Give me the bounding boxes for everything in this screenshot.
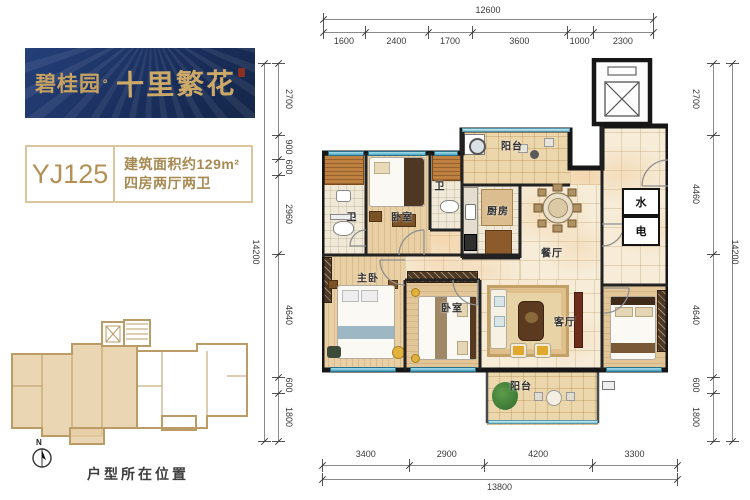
dim-segment-label: 3400 [356,449,376,459]
room-label: 卧室 [391,209,413,224]
dim-segment-label: 900 [284,139,294,154]
unit-area: 建筑面积约129m² [124,155,251,174]
dim-segment-label: 4200 [528,449,548,459]
room-label: 卫 [435,178,446,193]
dim-segment-label: 4640 [691,305,701,325]
unit-code: YJ125 [27,147,115,201]
logo-brand-text: 碧桂园 [35,68,101,98]
room-label: 主卧 [357,270,379,285]
dimension-strip-top: 16002400170036001000230012600 [323,8,653,54]
dim-segment-label: 2700 [284,89,294,109]
dim-segment-label: 1700 [440,36,460,46]
dim-line [322,479,677,480]
keyplan-caption: 户型所在位置 [38,464,238,484]
dim-segment-label: 3600 [509,36,529,46]
dim-segment-label: 2960 [284,204,294,224]
room-labels-layer: 卫卧室卫阳台厨房餐厅主卧卧室客厅阳台 [322,58,668,430]
dim-segment-label: 600 [691,378,701,393]
unit-description: 建筑面积约129m² 四房两厅两卫 [115,147,251,201]
dim-segment-label: 4460 [691,184,701,204]
dim-line [264,63,265,441]
dim-line [323,32,653,33]
dim-line [322,465,677,466]
dim-line [323,19,653,20]
unit-layout: 四房两厅两卫 [124,174,251,193]
room-label: 阳台 [510,378,532,393]
dim-segment-label: 2900 [437,449,457,459]
unit-info-box: YJ125 建筑面积约129m² 四房两厅两卫 [25,145,253,203]
logo-separator: 。 [103,70,114,86]
dim-segment-label: 1800 [691,407,701,427]
dimension-strip-right: 270044604640600180014200 [688,63,738,441]
room-label: 厨房 [487,203,509,218]
dim-segment-label: 3300 [625,449,645,459]
dimension-strip-left: 270090060029604640600180014200 [252,63,298,441]
dim-segment-label: 2400 [386,36,406,46]
brand-logo: 碧桂园 。 十里繁花 [25,48,255,118]
dim-segment-label: 1800 [284,407,294,427]
dim-segment-label: 1600 [334,36,354,46]
dim-segment-label: 2700 [691,89,701,109]
dim-total-label: 14200 [730,239,740,264]
room-label: 阳台 [501,138,523,153]
room-label: 客厅 [554,314,576,329]
room-label: 餐厅 [541,245,563,260]
dim-segment-label: 1000 [570,36,590,46]
room-label: 卧室 [441,300,463,315]
dim-segment-label: 600 [284,378,294,393]
dimension-strip-bottom: 340029004200330013800 [322,448,677,498]
room-label: 卫 [347,209,358,224]
logo-seal-icon [238,68,245,77]
dim-segment-label: 4640 [284,305,294,325]
dim-segment-label: 2300 [613,36,633,46]
page: { "logo": { "brand": "碧桂园", "dot": "。", … [0,0,750,500]
dim-total-label: 13800 [487,482,512,492]
dim-total-label: 12600 [475,5,500,15]
building-key-plan [2,316,258,458]
floor-plan: 水 电 卫卧室卫阳台厨房餐厅主卧卧室客厅阳台 [322,58,668,430]
dim-total-label: 14200 [251,239,261,264]
dim-segment-label: 600 [284,159,294,174]
logo-project-name: 十里繁花 [116,62,237,104]
